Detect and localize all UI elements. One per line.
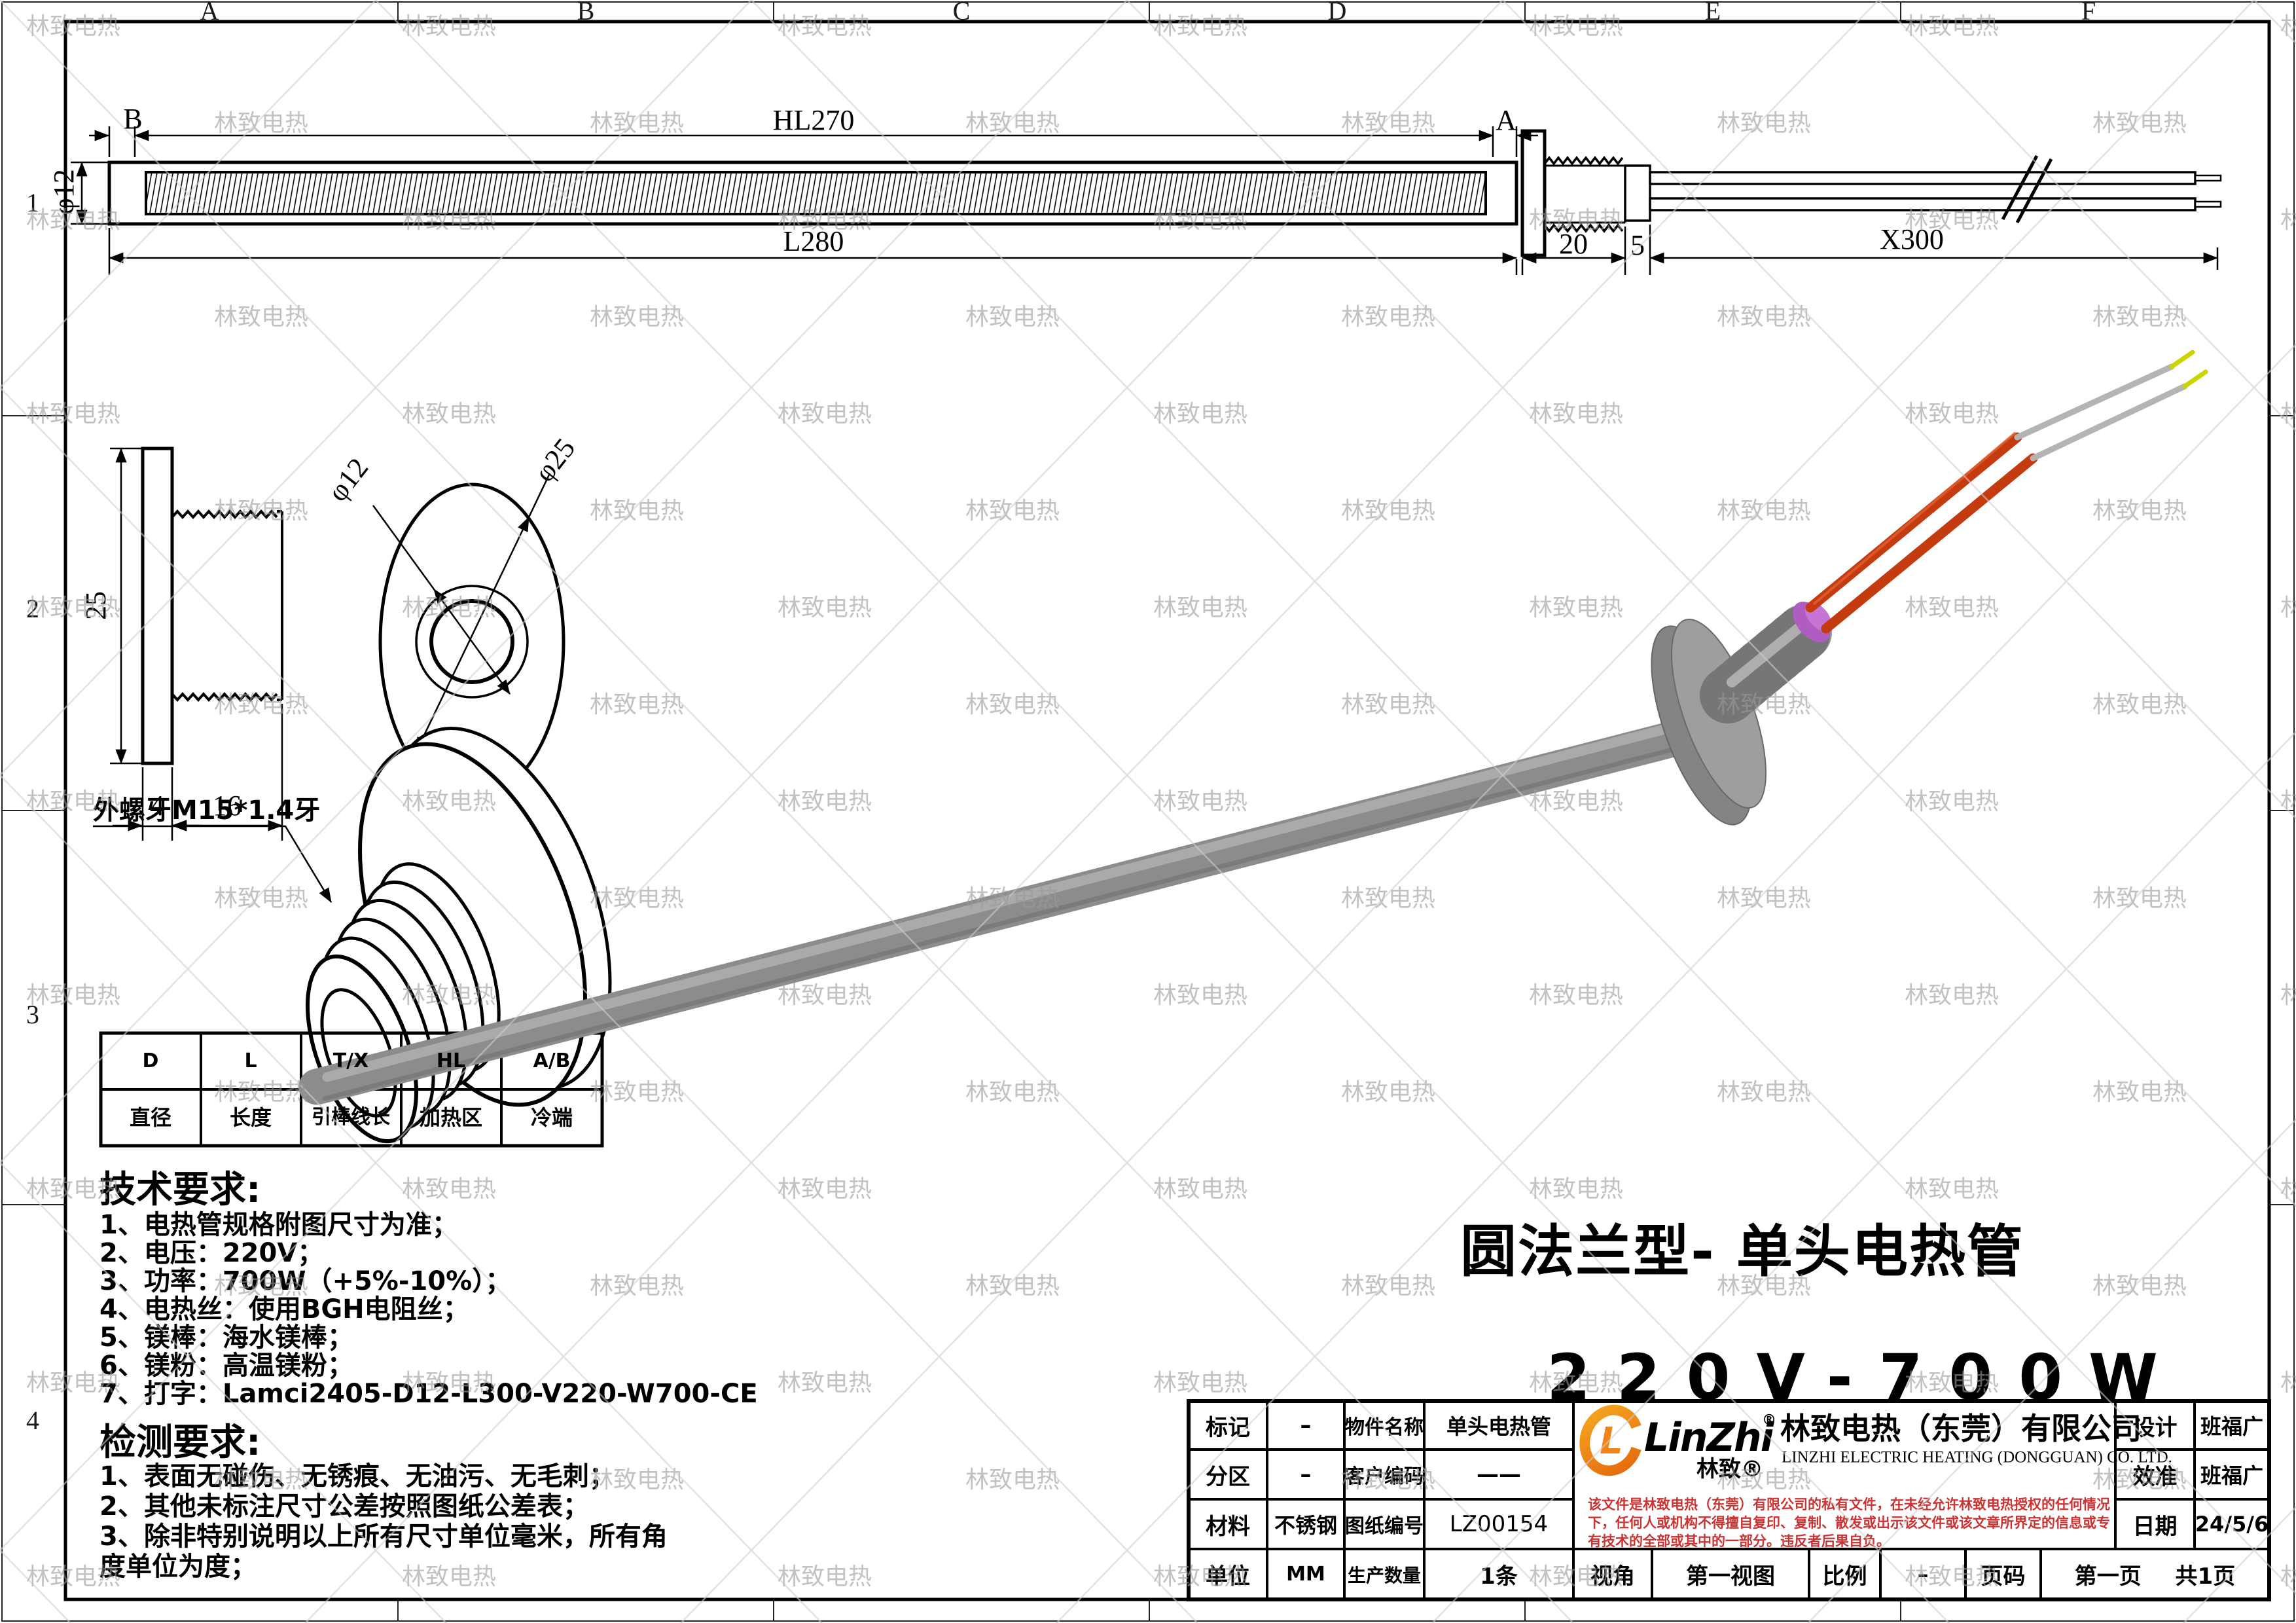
- page-first: 第一页: [2075, 1558, 2142, 1590]
- titleblock-page-value: 第一页 共1页: [2041, 1549, 2269, 1599]
- titleblock-customercode-value: ——: [1424, 1450, 1573, 1499]
- titleblock-mark-value: –: [1267, 1401, 1344, 1450]
- inspection-requirements-list: 1、表面无碰伤、无锈痕、无油污、无毛刺； 2、其他未标注尺寸公差按照图纸公差表；…: [99, 1461, 668, 1582]
- dim-label-20: 20: [1559, 230, 1588, 259]
- titleblock-view-label: 视角: [1573, 1549, 1652, 1599]
- tech-item: 3、功率：700W（+5%-10%）；: [99, 1267, 758, 1296]
- param-header-d: D: [143, 1051, 159, 1071]
- titleblock-quantity-value: 1条: [1424, 1549, 1573, 1599]
- zone-letter-c: C: [953, 0, 971, 24]
- titleblock-material-label: 材料: [1189, 1499, 1267, 1549]
- drawing-sheet: A B C D E F 1 2 3 4 B A HL270 L280 φ12 2…: [0, 0, 2296, 1623]
- company-name-en: LINZHI ELECTRIC HEATING (DONGGUAN) CO. L…: [1782, 1450, 2172, 1466]
- titleblock-customercode-label: 客户编码: [1344, 1450, 1424, 1499]
- inspection-item: 2、其他未标注尺寸公差按照图纸公差表；: [99, 1491, 668, 1522]
- tech-requirements-list: 1、电热管规格附图尺寸为准； 2、电压：220V； 3、功率：700W（+5%-…: [99, 1211, 758, 1408]
- tech-requirements-title: 技术要求:: [99, 1172, 260, 1209]
- param-meaning-heatzone: 加热区: [420, 1107, 482, 1128]
- dim-label-a: A: [1496, 106, 1516, 135]
- titleblock-design-value: 班福广: [2195, 1401, 2269, 1450]
- inspection-requirements-title: 检测要求:: [99, 1425, 260, 1461]
- tech-item: 1、电热管规格附图尺寸为准；: [99, 1211, 758, 1239]
- titleblock-partname-label: 物件名称: [1344, 1401, 1424, 1450]
- tech-item: 6、镁粉：高温镁粉；: [99, 1352, 758, 1380]
- titleblock-quantity-label: 生产数量: [1344, 1549, 1424, 1599]
- titleblock-unit-value: MM: [1267, 1549, 1344, 1599]
- dim-label-25: 25: [82, 591, 111, 620]
- tech-item: 4、电热丝：使用BGH电阻丝；: [99, 1296, 758, 1324]
- titleblock-date-value: 24/5/6: [2195, 1499, 2269, 1549]
- titleblock-zone-value: –: [1267, 1450, 1344, 1499]
- tech-item: 5、镁棒：海水镁棒；: [99, 1324, 758, 1352]
- company-name-cn: 林致电热（东莞）有限公司: [1780, 1413, 2142, 1444]
- company-logo-mark: L: [1600, 1423, 1623, 1460]
- titleblock-partname-value: 单头电热管: [1424, 1401, 1573, 1450]
- titleblock-material-value: 不锈钢: [1267, 1499, 1344, 1549]
- zone-letter-e: E: [1705, 0, 1721, 24]
- zone-number-2: 2: [26, 596, 39, 622]
- company-logo-text: LinZhi: [1644, 1418, 1772, 1457]
- product-type-title: 圆法兰型- 单头电热管: [1460, 1224, 2024, 1280]
- zone-number-3: 3: [26, 1002, 39, 1028]
- inspection-item: 1、表面无碰伤、无锈痕、无油污、无毛刺；: [99, 1461, 668, 1491]
- param-header-hl: HL: [437, 1051, 465, 1071]
- dim-label-x300: X300: [1880, 225, 1944, 254]
- titleblock-scale-value: –: [1880, 1549, 1965, 1599]
- company-logo-sub: 林致®: [1696, 1458, 1763, 1480]
- titleblock-view-value: 第一视图: [1652, 1549, 1809, 1599]
- product-spec: 220V-700W: [1547, 1346, 2184, 1409]
- titleblock-unit-label: 单位: [1189, 1549, 1267, 1599]
- titleblock-mark-label: 标记: [1189, 1401, 1267, 1450]
- param-meaning-diameter: 直径: [130, 1107, 171, 1128]
- company-logo-reg: ®: [1762, 1413, 1776, 1428]
- titleblock-drawingno-label: 图纸编号: [1344, 1499, 1424, 1549]
- zone-letter-b: B: [577, 0, 595, 24]
- param-meaning-length: 长度: [230, 1107, 272, 1128]
- disclaimer-line: 下，任何人或机构不得擅自复印、复制、散发或出示该文件或该文章所界定的信息或专: [1588, 1514, 2110, 1532]
- titleblock-drawingno-value: LZ00154: [1424, 1499, 1573, 1549]
- titleblock-check-value: 班福广: [2195, 1450, 2269, 1499]
- titleblock-date-label: 日期: [2115, 1499, 2195, 1549]
- zone-number-1: 1: [26, 190, 39, 216]
- dim-label-hl270: HL270: [773, 106, 855, 135]
- company-disclaimer: 该文件是林致电热（东莞）有限公司的私有文件，在未经允许林致电热授权的任何情况 下…: [1588, 1495, 2110, 1550]
- tech-item: 7、打字：Lamci2405-D12-L300-V220-W700-CE: [99, 1380, 758, 1408]
- titleblock-scale-label: 比例: [1809, 1549, 1880, 1599]
- titleblock-zone-label: 分区: [1189, 1450, 1267, 1499]
- inspection-item: 度单位为度；: [99, 1552, 668, 1582]
- zone-letter-d: D: [1328, 0, 1347, 24]
- dim-label-5: 5: [1630, 231, 1645, 260]
- param-header-tx: T/X: [333, 1051, 369, 1071]
- dim-label-b: B: [123, 105, 142, 134]
- inspection-item: 3、除非特别说明以上所有尺寸单位毫米，所有角: [99, 1522, 668, 1552]
- param-meaning-lead: 引棒线长: [312, 1108, 390, 1127]
- disclaimer-line: 有技术的全部或其中的一部分。违反者后果自负。: [1588, 1532, 2110, 1550]
- param-meaning-coldend: 冷端: [531, 1107, 573, 1128]
- zone-letter-f: F: [2081, 0, 2096, 24]
- disclaimer-line: 该文件是林致电热（东莞）有限公司的私有文件，在未经允许林致电热授权的任何情况: [1588, 1495, 2110, 1514]
- dim-label-dia12: φ12: [50, 169, 79, 214]
- zone-number-4: 4: [26, 1408, 39, 1434]
- zone-letter-a: A: [200, 0, 219, 24]
- param-header-ab: A/B: [533, 1051, 570, 1071]
- side-view-flange: [110, 448, 282, 841]
- dim-label-l280: L280: [783, 227, 844, 256]
- page-total: 共1页: [2176, 1558, 2236, 1590]
- tech-item: 2、电压：220V；: [99, 1239, 758, 1267]
- titleblock-page-label: 页码: [1965, 1549, 2041, 1599]
- thread-detail-label: 外螺牙M15*1.4牙: [93, 797, 320, 824]
- param-header-l: L: [244, 1051, 257, 1071]
